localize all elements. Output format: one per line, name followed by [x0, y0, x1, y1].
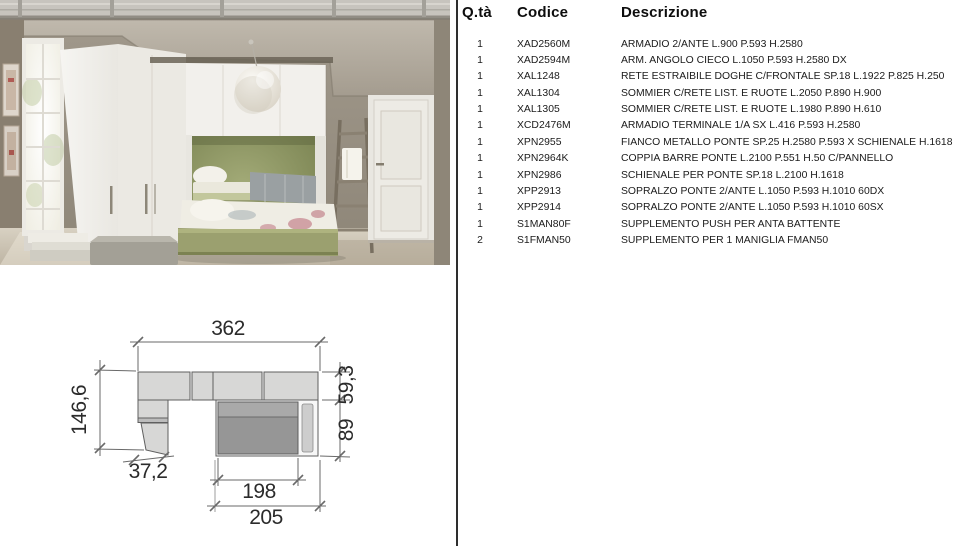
cell-desc: SOMMIER C/RETE LIST. E RUOTE L.1980 P.89… [621, 104, 881, 115]
cell-desc: ARM. ANGOLO CIECO L.1050 P.593 H.2580 DX [621, 55, 847, 66]
cell-code: XCD2476M [517, 120, 571, 131]
cell-qty: 1 [458, 170, 502, 181]
cell-qty: 1 [458, 88, 502, 99]
cell-code: S1FMAN50 [517, 235, 571, 246]
table-row: 1XPP2914SOPRALZO PONTE 2/ANTE L.1050 P.5… [458, 201, 970, 217]
header-desc: Descrizione [621, 4, 707, 21]
cell-code: XPN2986 [517, 170, 561, 181]
table-row: 1XCD2476MARMADIO TERMINALE 1/A SX L.416 … [458, 119, 970, 135]
table-row: 1XAD2560MARMADIO 2/ANTE L.900 P.593 H.25… [458, 37, 970, 53]
cell-code: XPN2964K [517, 153, 568, 164]
table-row: 1XPN2955FIANCO METALLO PONTE SP.25 H.258… [458, 135, 970, 151]
dim-label-bed-inner-length: 198 [242, 480, 276, 503]
cell-qty: 1 [458, 71, 502, 82]
dim-label-bed-width: 89 [335, 419, 358, 441]
plan-corner-unit [138, 400, 168, 455]
cell-desc: ARMADIO 2/ANTE L.900 P.593 H.2580 [621, 39, 803, 50]
cell-qty: 1 [458, 55, 502, 66]
table-row: 1S1MAN80FSUPPLEMENTO PUSH PER ANTA BATTE… [458, 217, 970, 233]
cell-code: XPN2955 [517, 137, 561, 148]
cell-qty: 1 [458, 120, 502, 131]
cell-desc: SCHIENALE PER PONTE SP.18 L.2100 H.1618 [621, 170, 844, 181]
cell-qty: 1 [458, 186, 502, 197]
table-row: 1XPN2964KCOPPIA BARRE PONTE L.2100 P.551… [458, 152, 970, 168]
floor-plan: 362 146,6 37,2 59,3 89 198 205 [0, 0, 450, 547]
cell-code: XPP2914 [517, 202, 561, 213]
table-row: 2S1FMAN50SUPPLEMENTO PER 1 MANIGLIA FMAN… [458, 234, 970, 250]
plan-wardrobe-row [138, 372, 318, 400]
cell-desc: FIANCO METALLO PONTE SP.25 H.2580 P.593 … [621, 137, 953, 148]
table-row: 1XPN2986SCHIENALE PER PONTE SP.18 L.2100… [458, 168, 970, 184]
cell-qty: 1 [458, 104, 502, 115]
table-row: 1XAL1248RETE ESTRAIBILE DOGHE C/FRONTALE… [458, 70, 970, 86]
cell-code: S1MAN80F [517, 219, 571, 230]
cell-desc: SOPRALZO PONTE 2/ANTE L.1050 P.593 H.101… [621, 186, 884, 197]
cell-qty: 1 [458, 137, 502, 148]
table-row: 1XAL1304SOMMIER C/RETE LIST. E RUOTE L.2… [458, 86, 970, 102]
cell-desc: RETE ESTRAIBILE DOGHE C/FRONTALE SP.18 L… [621, 71, 944, 82]
cell-desc: ARMADIO TERMINALE 1/A SX L.416 P.593 H.2… [621, 120, 860, 131]
parts-rows: 1XAD2560MARMADIO 2/ANTE L.900 P.593 H.25… [458, 37, 970, 250]
cell-code: XAL1304 [517, 88, 560, 99]
dim-label-total-width: 362 [211, 317, 245, 340]
dim-label-bed-outer-length: 205 [249, 506, 283, 529]
header-code: Codice [517, 4, 568, 21]
table-row: 1XPP2913SOPRALZO PONTE 2/ANTE L.1050 P.5… [458, 185, 970, 201]
table-row: 1XAL1305SOMMIER C/RETE LIST. E RUOTE L.1… [458, 103, 970, 119]
cell-code: XAL1248 [517, 71, 560, 82]
cell-qty: 2 [458, 235, 502, 246]
dim-label-top-depth: 59,3 [335, 366, 358, 405]
parts-table: Q.tà Codice Descrizione 1XAD2560MARMADIO… [458, 0, 970, 547]
cell-code: XAL1305 [517, 104, 560, 115]
cell-desc: SUPPLEMENTO PUSH PER ANTA BATTENTE [621, 219, 840, 230]
parts-table-header: Q.tà Codice Descrizione [458, 0, 970, 34]
cell-qty: 1 [458, 202, 502, 213]
header-qty: Q.tà [462, 4, 492, 21]
cell-code: XPP2913 [517, 186, 561, 197]
cell-desc: SOMMIER C/RETE LIST. E RUOTE L.2050 P.89… [621, 88, 881, 99]
cell-desc: SOPRALZO PONTE 2/ANTE L.1050 P.593 H.101… [621, 202, 884, 213]
cell-qty: 1 [458, 39, 502, 50]
plan-bed [216, 400, 318, 456]
cell-desc: SUPPLEMENTO PER 1 MANIGLIA FMAN50 [621, 235, 828, 246]
cell-qty: 1 [458, 219, 502, 230]
dim-label-left-depth: 146,6 [68, 385, 91, 435]
dim-label-corner-width: 37,2 [129, 460, 168, 483]
cell-qty: 1 [458, 153, 502, 164]
table-row: 1XAD2594MARM. ANGOLO CIECO L.1050 P.593 … [458, 53, 970, 69]
cell-code: XAD2594M [517, 55, 570, 66]
cell-code: XAD2560M [517, 39, 570, 50]
catalog-spec-page: 362 146,6 37,2 59,3 89 198 205 Q.tà Codi… [0, 0, 970, 547]
cell-desc: COPPIA BARRE PONTE L.2100 P.551 H.50 C/P… [621, 153, 893, 164]
